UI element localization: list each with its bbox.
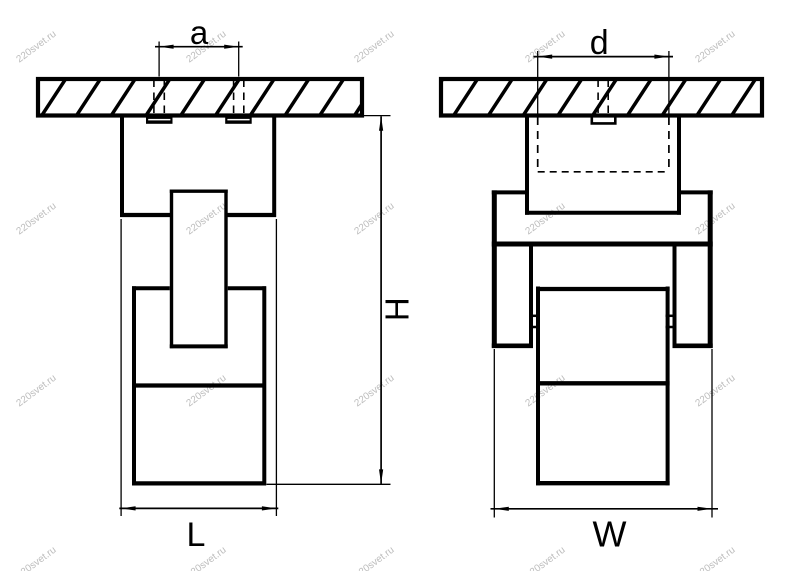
svg-text:d: d [590,24,609,62]
svg-text:W: W [593,514,627,555]
svg-text:a: a [190,14,209,51]
svg-text:H: H [378,297,415,321]
svg-text:L: L [187,516,206,554]
